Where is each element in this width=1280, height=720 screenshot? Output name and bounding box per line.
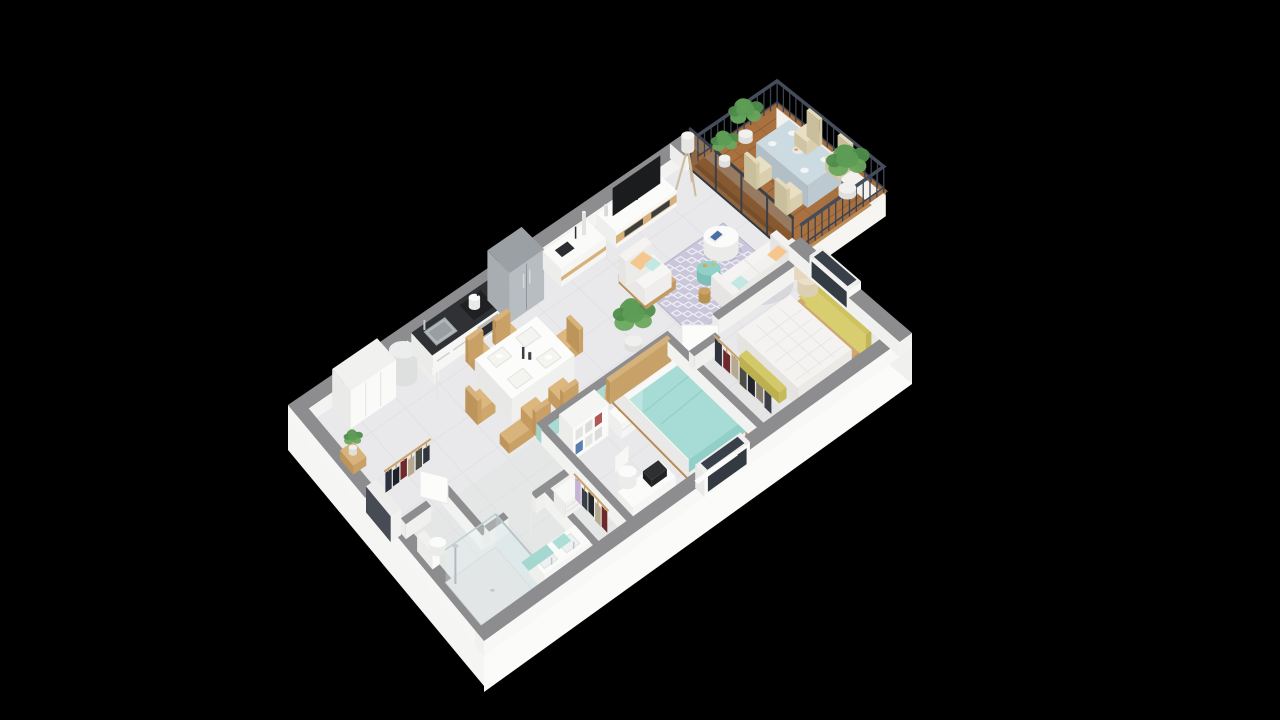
dining-chair-back <box>492 319 495 346</box>
balcony-chair-back <box>756 162 759 190</box>
tv-deco <box>604 205 608 215</box>
desk-chair-seat <box>618 478 637 490</box>
plate <box>768 141 776 146</box>
entry-plant-leaf <box>348 433 358 441</box>
balcony-plant-large-pot <box>839 183 857 194</box>
wicker-chair-seat <box>797 285 818 298</box>
vase <box>582 212 586 234</box>
entry-plant-pot <box>349 445 357 450</box>
toilet-bowl <box>429 546 446 556</box>
balcony-chair-back <box>819 118 822 146</box>
tv-deco <box>604 214 608 216</box>
shower-head <box>452 544 458 548</box>
plate <box>800 168 809 173</box>
balcony-plant-pot <box>719 155 730 162</box>
balcony-plant-pot <box>738 129 752 138</box>
wood-stool <box>699 296 711 303</box>
toilet-bowl <box>429 537 446 547</box>
shower-drain <box>490 589 495 592</box>
carafe <box>528 352 531 354</box>
cooking-pot <box>469 303 480 310</box>
apartment-3d-floorplan <box>0 0 1280 720</box>
fruit <box>794 148 798 150</box>
carafe <box>528 358 531 360</box>
floorplan-render-stage <box>0 0 1280 720</box>
dining-chair-back <box>579 327 583 354</box>
vase <box>582 211 586 213</box>
living-plant-pot <box>625 335 643 346</box>
plate <box>545 355 552 359</box>
bowl <box>703 264 708 267</box>
vase <box>582 233 586 235</box>
wood-stool <box>699 287 711 294</box>
tv-deco <box>604 204 608 206</box>
dining-chair-back <box>466 337 469 365</box>
bowl <box>711 263 715 265</box>
dining-chair-back <box>533 409 536 437</box>
plate <box>496 354 503 358</box>
floor-lamp-shade <box>681 131 694 139</box>
balcony-plant-leaf <box>717 134 732 146</box>
balcony-plant-large-leaf <box>836 150 858 168</box>
floor-lamp-shade <box>681 145 694 153</box>
entry-plant-pot <box>349 451 357 456</box>
dining-chair-back <box>478 398 482 425</box>
balcony-chair-back <box>787 188 790 216</box>
living-plant-leaf <box>622 305 644 323</box>
balcony-plant-leaf <box>736 103 754 118</box>
bed1-headboard <box>606 378 610 404</box>
